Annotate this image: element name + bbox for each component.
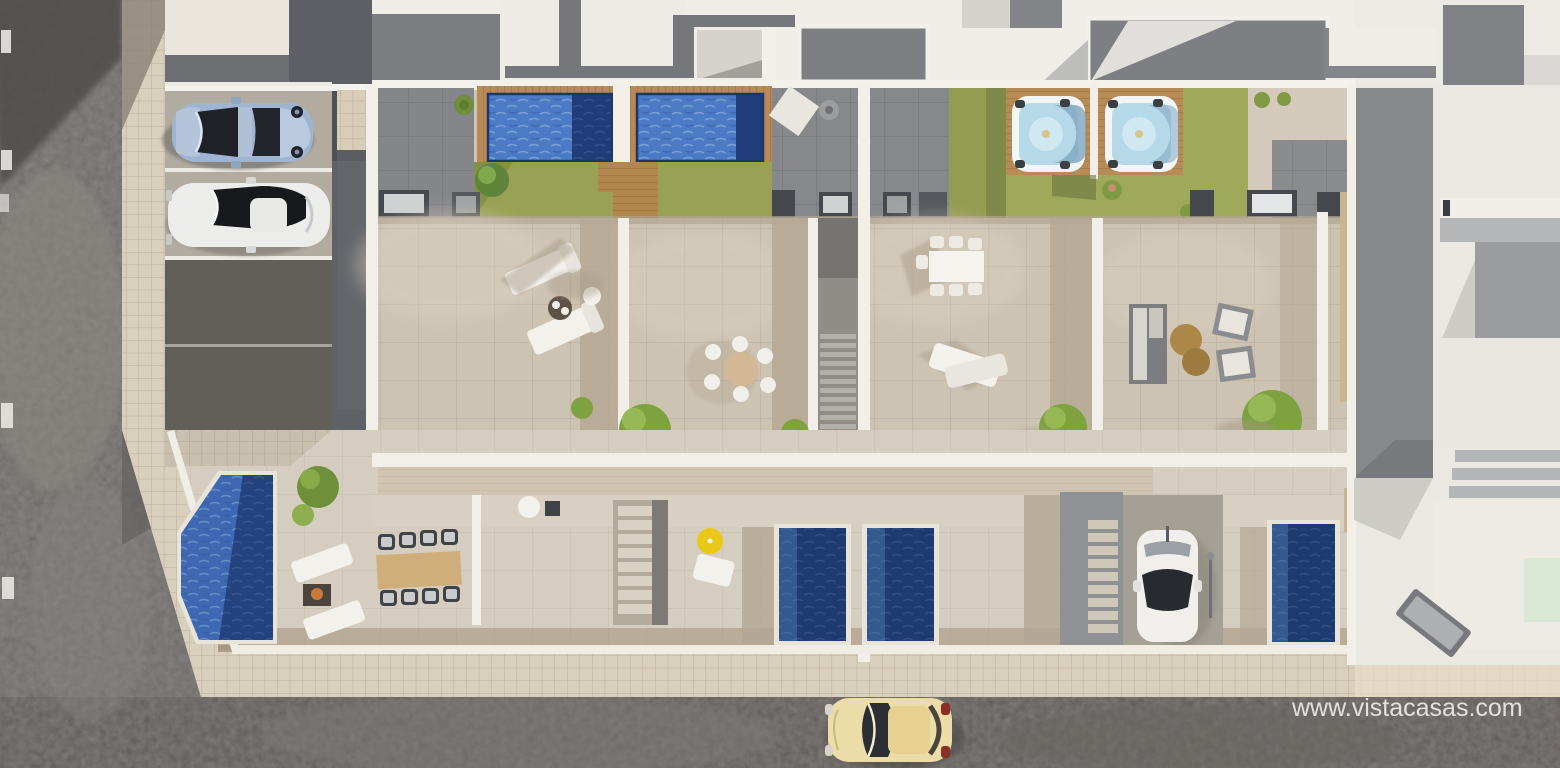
svg-text:www.vistacasas.com: www.vistacasas.com	[1291, 694, 1523, 722]
